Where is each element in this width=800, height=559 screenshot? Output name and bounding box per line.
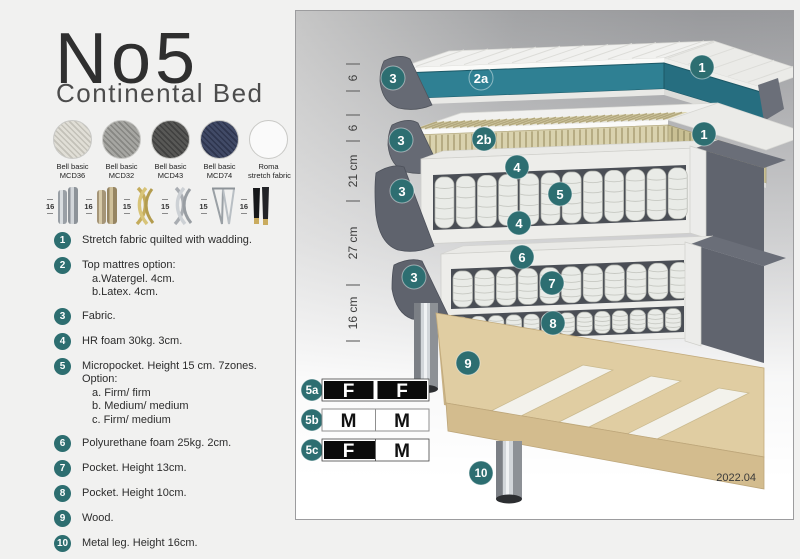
callout-1: 1 (690, 55, 714, 79)
svg-text:2a: 2a (474, 71, 489, 86)
item-number-badge: 4 (54, 333, 71, 350)
item-text: Wood. (82, 509, 114, 526)
svg-text:3: 3 (389, 71, 396, 86)
page: No5 Continental Bed Bell basicMCD36 Bell… (0, 0, 800, 533)
firmness-row-label: 5a (301, 379, 323, 401)
svg-text:8: 8 (549, 316, 556, 331)
callout-5: 5 (548, 182, 572, 206)
gold-twist-leg-icon (132, 184, 158, 228)
svg-text:3: 3 (410, 270, 417, 285)
leg-height: 15 (161, 202, 169, 211)
version-label: 2022.04 (716, 472, 756, 484)
list-item: 8Pocket. Height 10cm. (54, 484, 292, 502)
fabric-code: MCD74 (207, 171, 232, 180)
fabric-swatch[interactable]: Romastretch fabric (248, 120, 289, 180)
item-number-badge: 7 (54, 460, 71, 477)
leg-height: 16 (46, 202, 54, 211)
leg-option[interactable]: 15 (123, 184, 158, 228)
layer-micropocket-mattress (375, 140, 786, 253)
list-item: 7Pocket. Height 13cm. (54, 459, 292, 477)
callout-7: 7 (540, 271, 564, 295)
firmness-cell: M (394, 411, 410, 432)
item-text: Pocket. Height 10cm. (82, 484, 187, 501)
svg-text:5c: 5c (306, 445, 319, 457)
steel-cylinder-leg-icon (55, 184, 81, 228)
measurement-labels: 6 6 21 cm 27 cm 16 cm (346, 74, 360, 329)
callout-10: 10 (469, 461, 493, 485)
leg-height: 15 (123, 202, 131, 211)
firmness-cell: F (343, 381, 355, 402)
measurement-label: 21 cm (346, 155, 360, 188)
info-column: No5 Continental Bed Bell basicMCD36 Bell… (0, 0, 295, 533)
callout-2a: 2a (469, 66, 493, 90)
item-subtext: a.Watergel. 4cm. (82, 273, 176, 287)
measurement-label: 6 (346, 74, 360, 81)
fabric-swatch-image[interactable] (200, 120, 239, 159)
item-subtext: a. Firm/ firm (82, 387, 292, 401)
callout-9: 9 (456, 351, 480, 375)
svg-text:6: 6 (518, 250, 525, 265)
leg-option[interactable]: 15 (199, 184, 236, 228)
metal-leg-right (496, 441, 522, 504)
leg-height: 15 (199, 202, 207, 211)
item-number-badge: 10 (54, 535, 71, 552)
svg-text:1: 1 (700, 127, 707, 142)
callout-6: 6 (510, 245, 534, 269)
svg-text:5a: 5a (306, 385, 319, 397)
feature-list: 1Stretch fabric quilted with wadding. 2T… (54, 231, 292, 559)
fabric-swatch-image[interactable] (151, 120, 190, 159)
callout-4: 4 (507, 211, 531, 235)
measurement-label: 16 cm (346, 297, 360, 330)
list-item: 3Fabric. (54, 307, 292, 325)
hairpin-leg-icon (209, 184, 237, 228)
list-item: 6Polyurethane foam 25kg. 2cm. (54, 434, 292, 452)
callout-8: 8 (541, 311, 565, 335)
svg-text:2b: 2b (476, 132, 491, 147)
item-subtext: b.Latex. 4cm. (82, 286, 176, 300)
item-text: Pocket. Height 13cm. (82, 459, 187, 476)
silver-twist-leg-icon (170, 184, 196, 228)
bed-cutaway-diagram: 6 6 21 cm 27 cm 16 cm (296, 11, 793, 519)
callout-3: 3 (390, 179, 414, 203)
item-number-badge: 2 (54, 257, 71, 274)
svg-text:9: 9 (464, 356, 471, 371)
fabric-swatch[interactable]: Bell basicMCD74 (199, 120, 240, 180)
firmness-table: 5a F F 5b M M 5c F M (301, 379, 429, 462)
list-item: 10Metal leg. Height 16cm. (54, 534, 292, 552)
item-number-badge: 9 (54, 510, 71, 527)
list-item: 5Micropocket. Height 15 cm. 7zones. Opti… (54, 357, 292, 428)
item-number-badge: 8 (54, 485, 71, 502)
diagram-panel: 6 6 21 cm 27 cm 16 cm (295, 10, 794, 520)
list-item: 2Top mattres option:a.Watergel. 4cm.b.La… (54, 256, 292, 300)
list-item: 9Wood. (54, 509, 292, 527)
leg-option[interactable]: 16 (84, 184, 119, 228)
callout-3: 3 (389, 128, 413, 152)
brass-cylinder-leg-icon (94, 184, 120, 228)
leg-option[interactable]: 16 (240, 184, 273, 228)
list-item: 1Stretch fabric quilted with wadding. (54, 231, 292, 249)
leg-height: 16 (84, 202, 92, 211)
item-number-badge: 1 (54, 232, 71, 249)
measurement-label: 27 cm (346, 227, 360, 260)
item-number-badge: 6 (54, 435, 71, 452)
svg-text:5: 5 (556, 187, 563, 202)
fabric-swatch[interactable]: Bell basicMCD32 (101, 120, 142, 180)
firmness-cell: M (341, 411, 357, 432)
svg-text:4: 4 (513, 160, 521, 175)
item-text: Top mattres option: (82, 256, 176, 273)
fabric-swatch[interactable]: Bell basicMCD43 (150, 120, 191, 180)
callout-4: 4 (505, 155, 529, 179)
fabric-code: stretch fabric (248, 171, 291, 180)
list-item: 4HR foam 30kg. 3cm. (54, 332, 292, 350)
svg-text:1: 1 (698, 60, 705, 75)
fabric-swatch-row: Bell basicMCD36 Bell basicMCD32 Bell bas… (52, 120, 289, 180)
fabric-swatch-image[interactable] (249, 120, 288, 159)
item-text: Fabric. (82, 307, 116, 324)
svg-text:10: 10 (475, 468, 488, 480)
leg-height: 16 (240, 202, 248, 211)
callout-2b: 2b (472, 127, 496, 151)
svg-text:3: 3 (398, 184, 405, 199)
item-number-badge: 3 (54, 308, 71, 325)
svg-text:7: 7 (548, 276, 555, 291)
fabric-swatch[interactable]: Bell basicMCD36 (52, 120, 93, 180)
item-subtext: c. Firm/ medium (82, 414, 292, 428)
fabric-code: MCD43 (158, 171, 183, 180)
callout-1: 1 (692, 122, 716, 146)
item-text: Polyurethane foam 25kg. 2cm. (82, 434, 231, 451)
leg-option[interactable]: 15 (161, 184, 196, 228)
svg-text:4: 4 (515, 216, 523, 231)
firmness-cell: F (396, 381, 408, 402)
leg-options-row: 16 16 15 (46, 184, 273, 228)
callout-3: 3 (402, 265, 426, 289)
svg-text:3: 3 (397, 133, 404, 148)
item-text: Stretch fabric quilted with wadding. (82, 231, 252, 248)
item-text: HR foam 30kg. 3cm. (82, 332, 182, 349)
leg-option[interactable]: 16 (46, 184, 81, 228)
black-taper-leg-icon (249, 184, 273, 228)
item-subtext: b. Medium/ medium (82, 400, 292, 414)
firmness-row-label: 5b (301, 409, 323, 431)
fabric-swatch-image[interactable] (102, 120, 141, 159)
product-subtitle: Continental Bed (56, 78, 264, 109)
firmness-cell: F (343, 441, 355, 462)
fabric-code: MCD32 (109, 171, 134, 180)
callout-3: 3 (381, 66, 405, 90)
item-text: Metal leg. Height 16cm. (82, 534, 198, 551)
fabric-swatch-image[interactable] (53, 120, 92, 159)
firmness-cell: M (394, 441, 410, 462)
measurement-label: 6 (346, 124, 360, 131)
svg-text:5b: 5b (305, 415, 318, 427)
firmness-row-label: 5c (301, 439, 323, 461)
item-number-badge: 5 (54, 358, 71, 375)
item-text: Micropocket. Height 15 cm. 7zones. Optio… (82, 357, 292, 387)
fabric-code: MCD36 (60, 171, 85, 180)
